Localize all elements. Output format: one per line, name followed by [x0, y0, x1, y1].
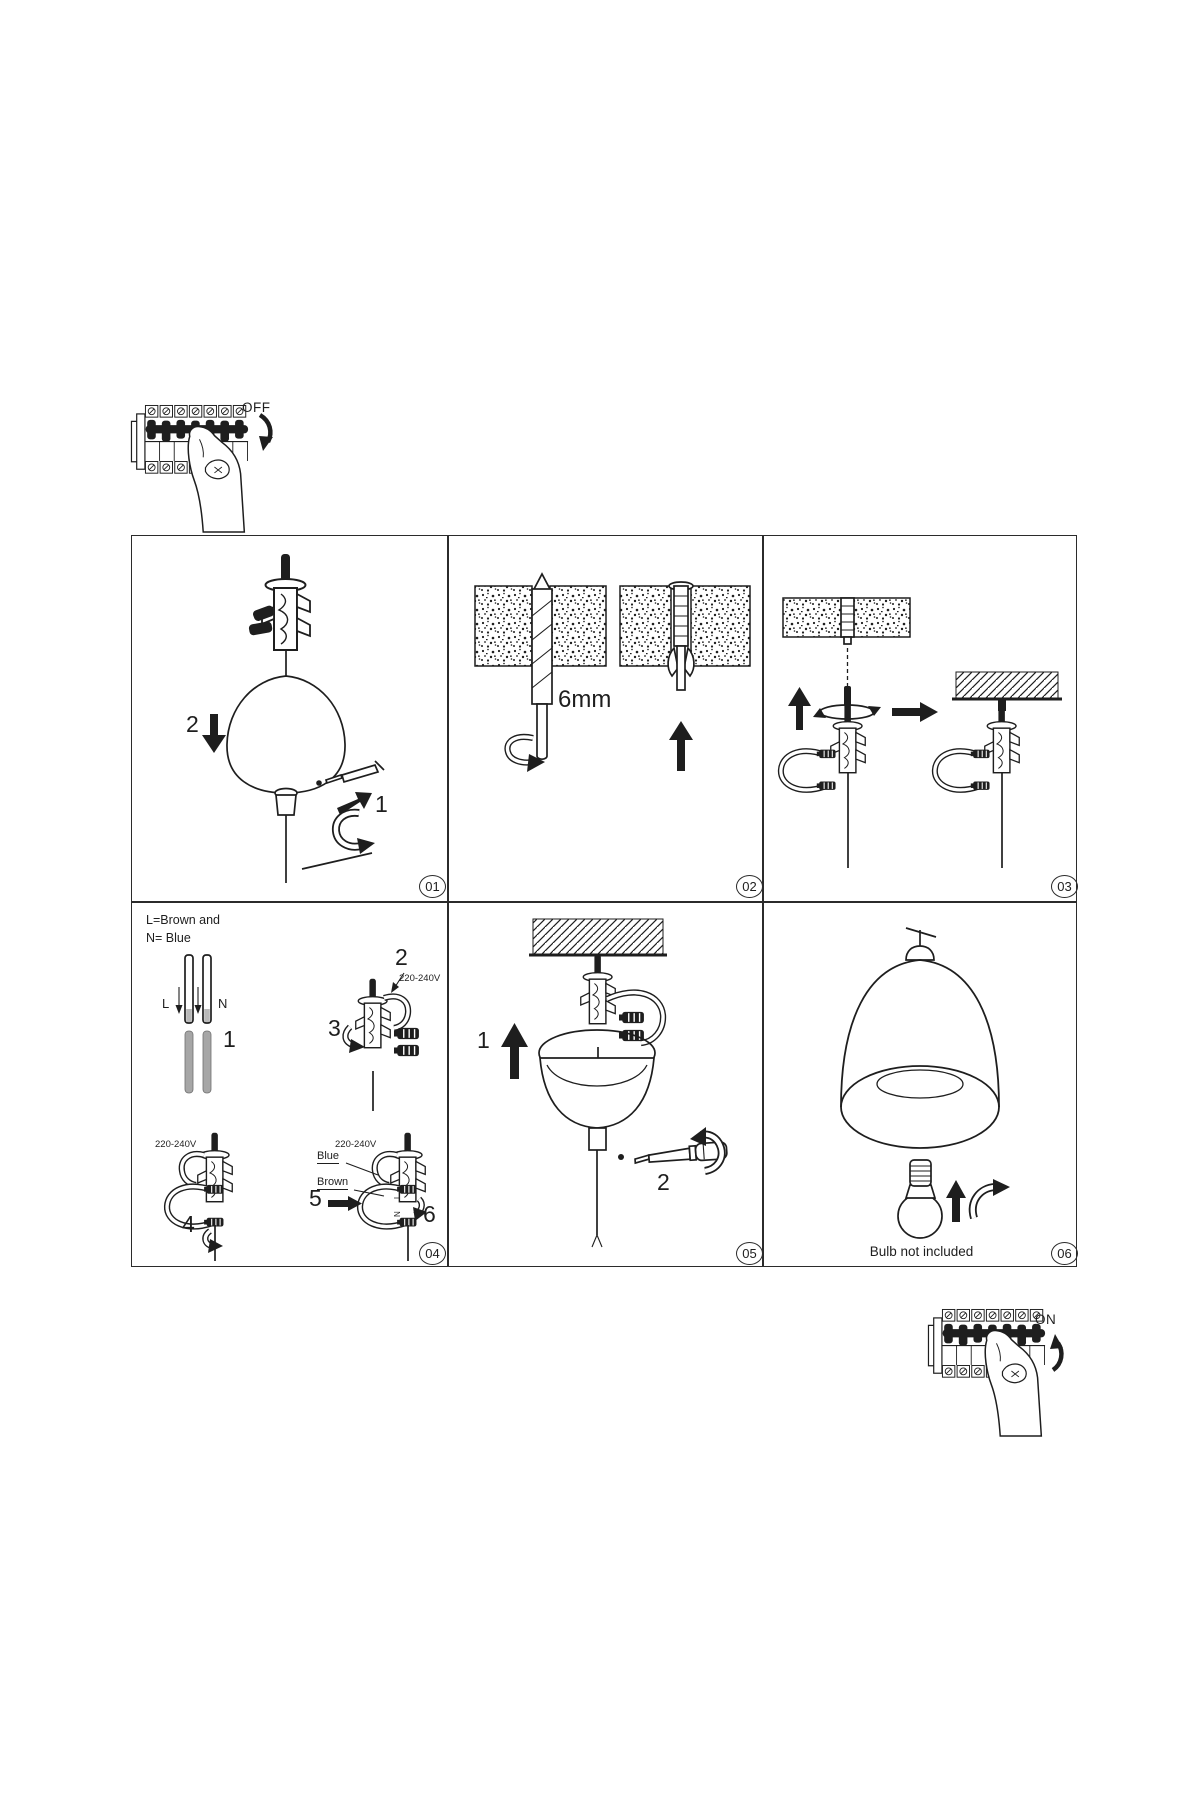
step-number: 4: [182, 1211, 195, 1239]
step-number: 1: [223, 1026, 236, 1054]
power-off-step: OFF: [120, 388, 335, 548]
screw-dot: [618, 1154, 624, 1160]
blue-label: Blue: [317, 1150, 339, 1164]
rotate-arrow-icon: [336, 813, 375, 854]
socket-icon: [275, 789, 297, 816]
bulb-note: Bulb not included: [824, 1244, 1019, 1260]
step-number: 2: [395, 944, 408, 972]
voltage-label: 220-240V: [335, 1139, 376, 1150]
step-number: 1: [375, 791, 388, 819]
terminal-label-n: N: [393, 1211, 402, 1217]
wire-label-l: L: [162, 996, 169, 1012]
arrow-right-icon: [328, 1196, 362, 1211]
arrow-down-icon: [202, 714, 226, 753]
ceiling-icon: [952, 672, 1062, 699]
panel-badge: 02: [736, 875, 763, 898]
lamp-shade-icon: [841, 960, 999, 1148]
drill-bit-icon: [532, 574, 552, 759]
wire-pair-icon: [176, 955, 212, 1023]
panel-03: 03: [764, 536, 1079, 901]
arrow-up-icon: [501, 1023, 528, 1079]
terminal-label-l: L: [393, 1194, 402, 1199]
rotate-arrow-icon: [973, 1179, 1010, 1218]
panel-04: L N L=Brown and N= Blue L N 1 2 220-240V…: [132, 903, 447, 1268]
panel-06: Bulb not included 06: [764, 903, 1079, 1268]
panel-badge: 04: [419, 1242, 446, 1265]
instruction-grid: 2 1 01: [131, 535, 1077, 1267]
arrow-up-icon: [946, 1180, 966, 1222]
cord-grip-icon: [935, 704, 1019, 868]
arrow-right-icon: [892, 702, 938, 722]
wiring-note-line2: N= Blue: [146, 931, 191, 946]
panel-badge: 06: [1051, 1242, 1078, 1265]
breaker-panel-icon: [131, 405, 248, 532]
cord-line: [906, 928, 936, 937]
panel-badge: 05: [736, 1242, 763, 1265]
step-number: 1: [477, 1027, 490, 1055]
panel-01: 2 1 01: [132, 536, 447, 901]
wiring-note-line1: L=Brown and: [146, 913, 220, 928]
screwdriver-icon: [634, 1142, 727, 1165]
arrow-up-icon: [788, 687, 811, 730]
arrow-curve-down-icon: [259, 415, 273, 451]
voltage-label: 220-240V: [399, 973, 440, 984]
panel-02: 6mm 02: [449, 536, 764, 901]
step-number: 5: [309, 1185, 322, 1213]
concrete-wall: [475, 586, 750, 666]
ceiling-icon: [529, 919, 667, 955]
cord-grip-icon: [781, 704, 865, 868]
step-number: 2: [186, 711, 199, 739]
panel-badge: 03: [1051, 875, 1078, 898]
on-label: ON: [1035, 1312, 1056, 1328]
lamp-shade-icon: [227, 676, 345, 793]
step-number: 3: [328, 1015, 341, 1043]
step-number: 2: [657, 1169, 670, 1197]
cord-grip-icon: [248, 554, 310, 650]
shade-cone-icon: [539, 1030, 655, 1150]
panel-badge: 01: [419, 875, 446, 898]
breaker-panel-icon: [928, 1309, 1045, 1436]
cap-icon: [906, 946, 934, 960]
power-on-step: ON: [912, 1286, 1127, 1446]
off-label: OFF: [242, 400, 271, 416]
wire-label-n: N: [218, 996, 227, 1012]
floor-line: [302, 853, 372, 869]
cord-grip-icon: [167, 1133, 232, 1261]
rotate-arrow-icon: [345, 1027, 365, 1053]
wall-anchor-icon: [841, 598, 854, 644]
screw-dot: [316, 780, 322, 786]
drill-size-label: 6mm: [558, 686, 611, 715]
voltage-label: 220-240V: [155, 1139, 196, 1150]
arrow-up-icon: [669, 721, 693, 771]
manual-page: OFF: [0, 0, 1200, 1800]
step-number: 6: [423, 1201, 436, 1229]
bulb-icon: [898, 1160, 942, 1238]
arrow-curve-up-icon: [1050, 1334, 1063, 1370]
panel-05: 1 2 05: [449, 903, 764, 1268]
cord-grip-icon: [356, 979, 419, 1111]
wall-anchor-icon: [668, 582, 694, 690]
stripped-wire-pair-icon: [185, 1031, 211, 1093]
